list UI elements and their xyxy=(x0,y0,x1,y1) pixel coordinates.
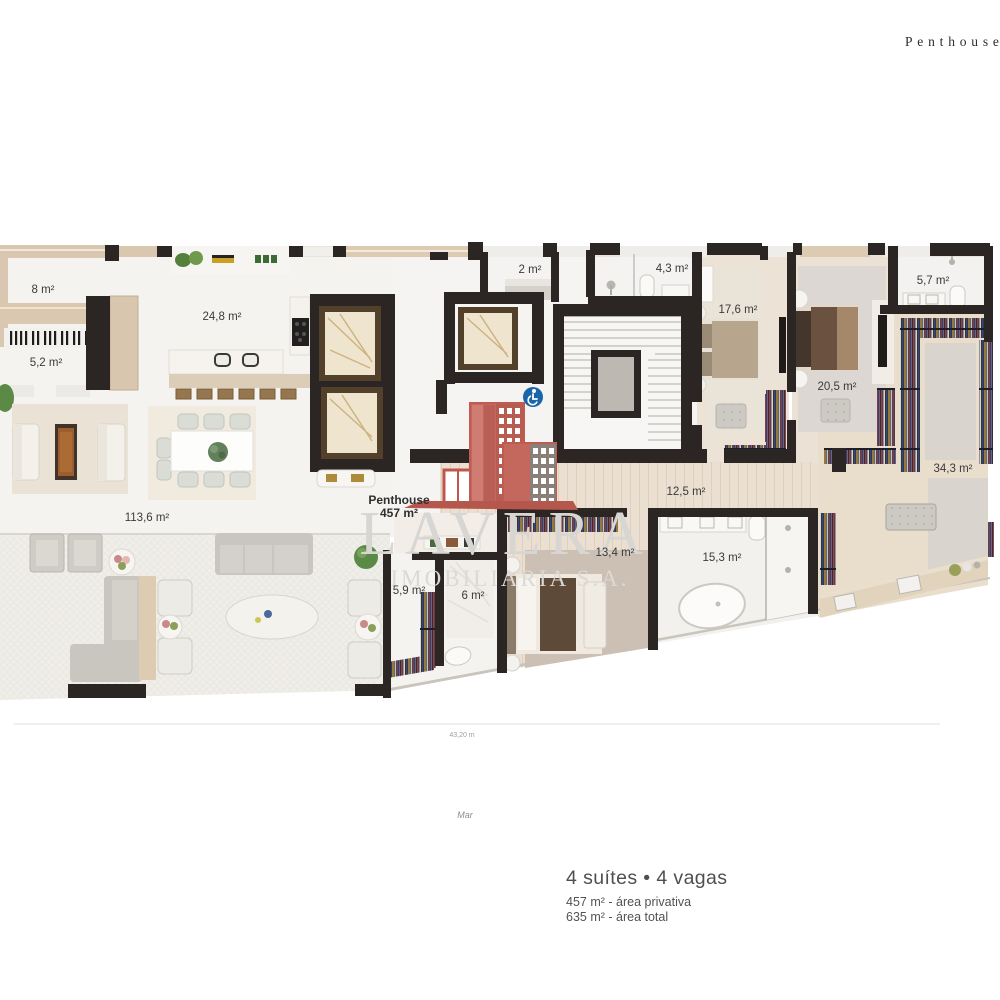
svg-text:5,2 m²: 5,2 m² xyxy=(30,357,63,369)
svg-text:8 m²: 8 m² xyxy=(32,284,55,296)
svg-text:Penthouse: Penthouse xyxy=(368,493,430,507)
svg-text:43,20 m: 43,20 m xyxy=(449,732,474,739)
svg-text:635 m² - área total: 635 m² - área total xyxy=(566,910,668,924)
svg-text:24,8 m²: 24,8 m² xyxy=(203,311,242,323)
svg-text:17,6 m²: 17,6 m² xyxy=(719,304,758,316)
svg-text:5,9 m²: 5,9 m² xyxy=(393,585,426,597)
svg-text:12,5 m²: 12,5 m² xyxy=(667,486,706,498)
svg-text:2 m²: 2 m² xyxy=(519,264,542,276)
svg-text:34,3 m²: 34,3 m² xyxy=(934,463,973,475)
svg-text:20,5 m²: 20,5 m² xyxy=(818,381,857,393)
svg-text:4 suítes • 4 vagas: 4 suítes • 4 vagas xyxy=(566,867,727,889)
svg-text:Penthouse: Penthouse xyxy=(905,34,1000,49)
svg-text:113,6 m²: 113,6 m² xyxy=(125,512,170,524)
svg-text:13,4 m²: 13,4 m² xyxy=(596,547,635,559)
svg-text:457 m² - área privativa: 457 m² - área privativa xyxy=(566,895,691,909)
svg-text:6 m²: 6 m² xyxy=(462,590,485,602)
svg-text:Mar: Mar xyxy=(457,810,474,820)
svg-text:5,7 m²: 5,7 m² xyxy=(917,275,950,287)
svg-text:15,3 m²: 15,3 m² xyxy=(703,552,742,564)
svg-text:4,3 m²: 4,3 m² xyxy=(656,263,689,275)
svg-text:457 m²: 457 m² xyxy=(380,506,418,520)
svg-text:IMOBILIARIA S.A.: IMOBILIARIA S.A. xyxy=(390,566,629,591)
